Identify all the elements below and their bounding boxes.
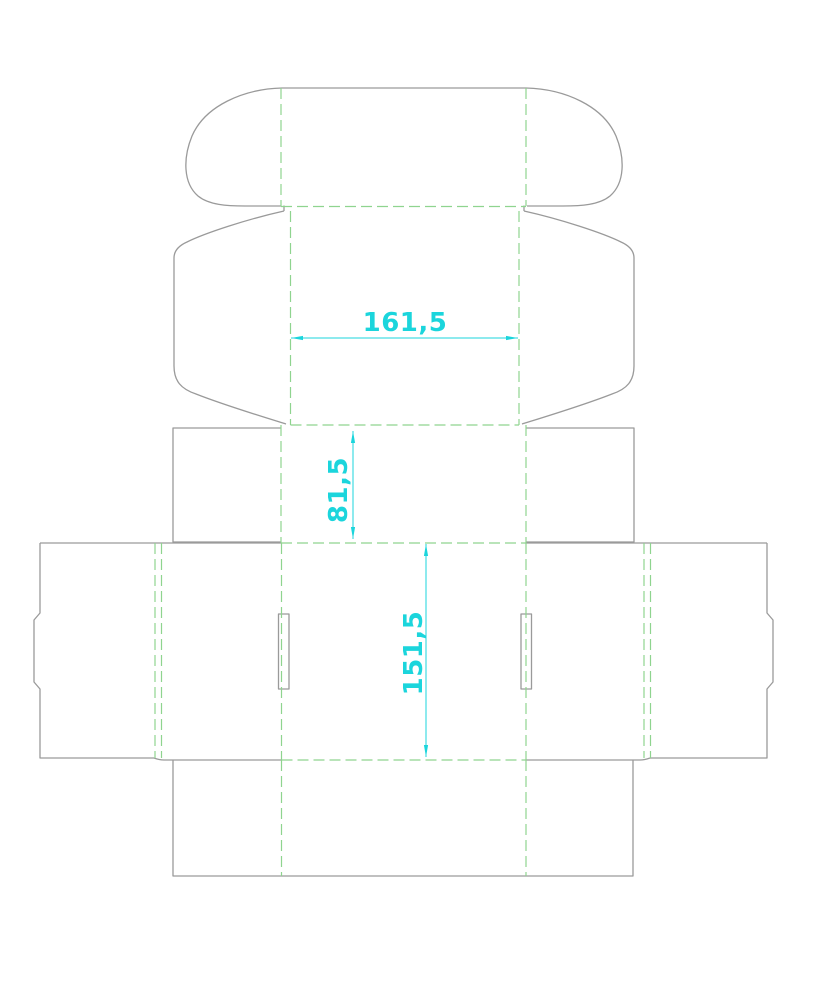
dimension-lid-width-arrowhead-end (506, 336, 518, 340)
cut-line-lock-slot-left (279, 614, 290, 689)
cut-line-lock-flap-right (650, 543, 773, 758)
dimension-dust-height: 81,5 (324, 431, 355, 539)
cut-line-lid-wing-right (522, 211, 634, 424)
cut-line-body-bottom-edge-right (526, 758, 650, 760)
dieline-page: 161,581,5151,5 (0, 0, 814, 1000)
dimension-lid-width-label: 161,5 (363, 308, 448, 338)
cut-line-dust-flap-right (526, 428, 634, 542)
cut-line-tuck-flap-ear-right (526, 88, 622, 206)
cut-line-bottom-panel (173, 760, 633, 876)
dimension-body-height-arrowhead-end (424, 745, 428, 757)
cut-line-lid-wing-left (174, 211, 286, 424)
dimension-dust-height-arrowhead-end (351, 527, 355, 539)
dimensions-layer: 161,581,5151,5 (291, 308, 518, 757)
dimension-lid-width-arrowhead-start (291, 336, 303, 340)
dimension-body-height-arrowhead-start (424, 544, 428, 556)
dimension-dust-height-label: 81,5 (324, 457, 354, 523)
box-dieline-drawing: 161,581,5151,5 (0, 0, 814, 1000)
dimension-body-height: 151,5 (399, 544, 429, 757)
cut-line-tuck-flap-ear-left (186, 88, 282, 206)
dimension-lid-width: 161,5 (291, 308, 518, 340)
cut-line-dust-flap-left (173, 428, 281, 542)
dimension-dust-height-arrowhead-start (351, 431, 355, 443)
cut-line-body-bottom-edge-left (154, 758, 281, 760)
cut-line-lock-flap-left (34, 543, 154, 758)
dimension-body-height-label: 151,5 (399, 611, 429, 696)
